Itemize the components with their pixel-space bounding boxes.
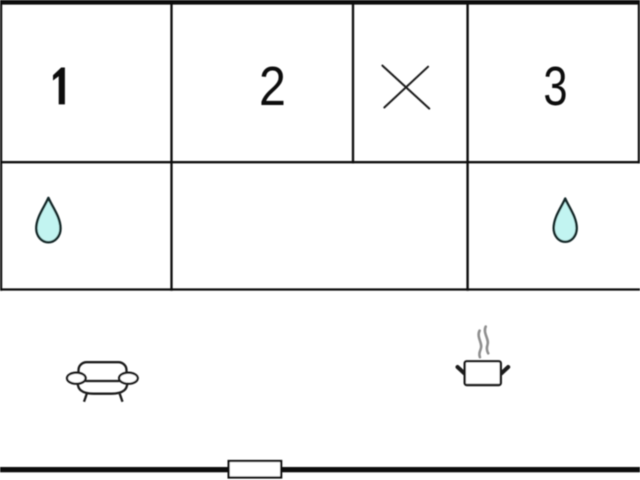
svg-text:2: 2	[259, 55, 286, 117]
svg-text:3: 3	[543, 55, 567, 117]
